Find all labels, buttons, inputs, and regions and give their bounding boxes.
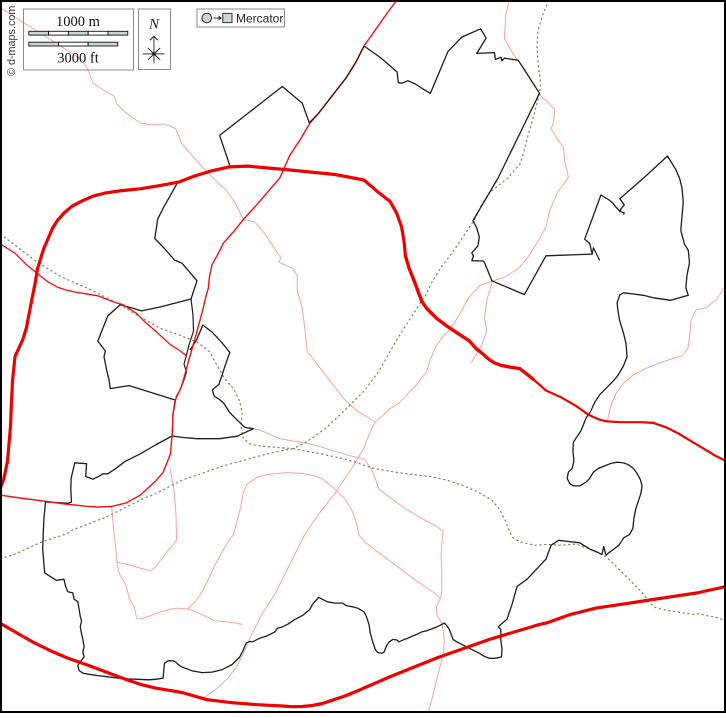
svg-text:1000 m: 1000 m [56, 14, 101, 30]
svg-text:Mercator: Mercator [236, 12, 283, 26]
svg-text:N: N [148, 17, 160, 33]
svg-text:3000 ft: 3000 ft [57, 51, 98, 67]
svg-text:© d-maps.com: © d-maps.com [6, 6, 18, 76]
